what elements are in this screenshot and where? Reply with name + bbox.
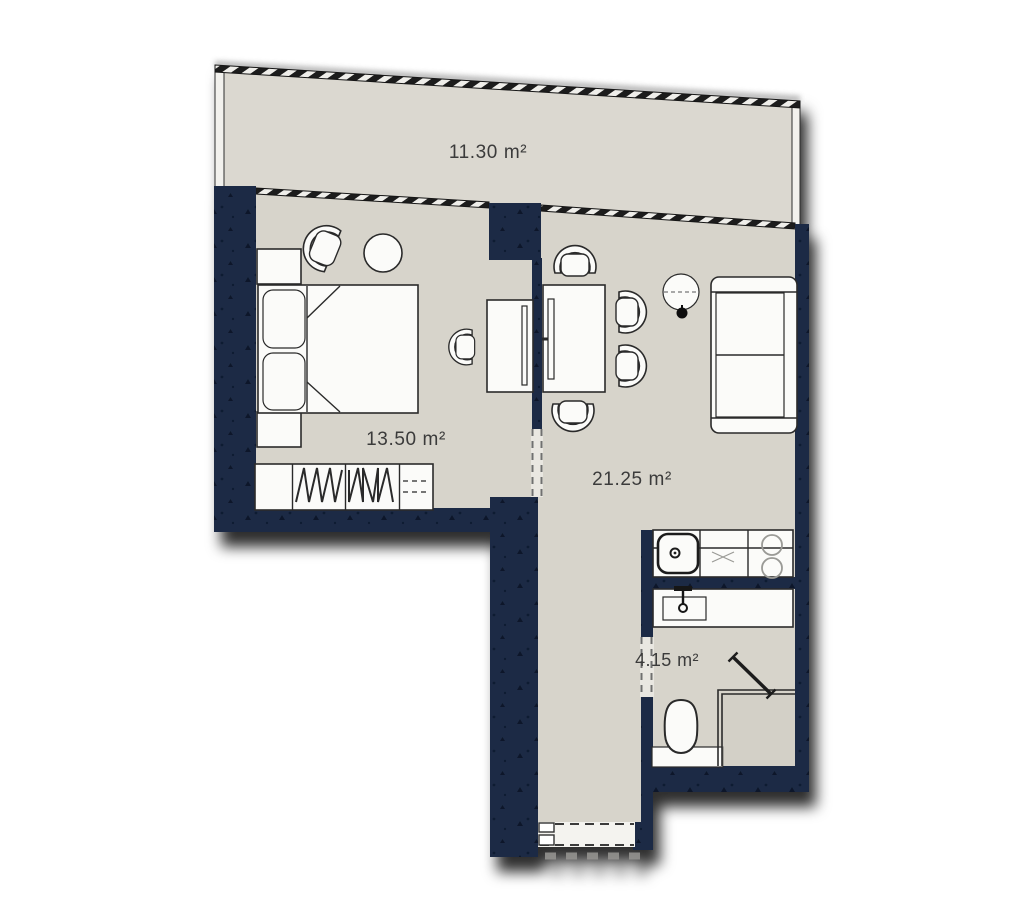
bedroom-door-opening — [531, 429, 543, 497]
wall-partition-chunk — [489, 203, 541, 260]
wall-kitchen-bathroom — [641, 577, 797, 589]
balcony-left-wall — [215, 68, 224, 189]
vanity — [653, 586, 793, 627]
nightstand — [257, 412, 301, 447]
pillow — [263, 353, 305, 410]
desk-monitor — [522, 306, 527, 385]
wall-bedroom-bottom — [214, 508, 538, 532]
double-bed — [258, 285, 418, 413]
room-label-balcony: 11.30 m² — [449, 142, 527, 163]
kitchen-counter — [653, 530, 793, 578]
pillow — [263, 290, 305, 348]
balcony-right-wall — [792, 104, 800, 228]
floor-plan-canvas: 11.30 m² 13.50 m² 21.25 m² 4.15 m² — [0, 0, 1024, 907]
wall-left-exterior — [214, 186, 256, 532]
pouf — [364, 234, 402, 272]
floor-plan-page: 11.30 m² 13.50 m² 21.25 m² 4.15 m² — [0, 0, 1024, 907]
kitchen-sink — [658, 534, 698, 573]
room-label-living-room: 21.25 m² — [592, 469, 672, 490]
wall-bathroom-bottom — [641, 766, 809, 792]
room-label-bathroom: 4.15 m² — [635, 650, 699, 670]
wall-entrance-post — [633, 822, 653, 850]
wall-hallway-left — [490, 497, 538, 857]
nightstand — [257, 249, 301, 284]
wall-bathroom-left-lower — [641, 697, 653, 823]
apartment-plan: 11.30 m² 13.50 m² 21.25 m² 4.15 m² — [214, 61, 809, 857]
entrance-door — [538, 822, 640, 856]
wardrobe — [255, 464, 433, 510]
sofa — [711, 277, 797, 433]
room-label-bedroom: 13.50 m² — [366, 429, 446, 450]
